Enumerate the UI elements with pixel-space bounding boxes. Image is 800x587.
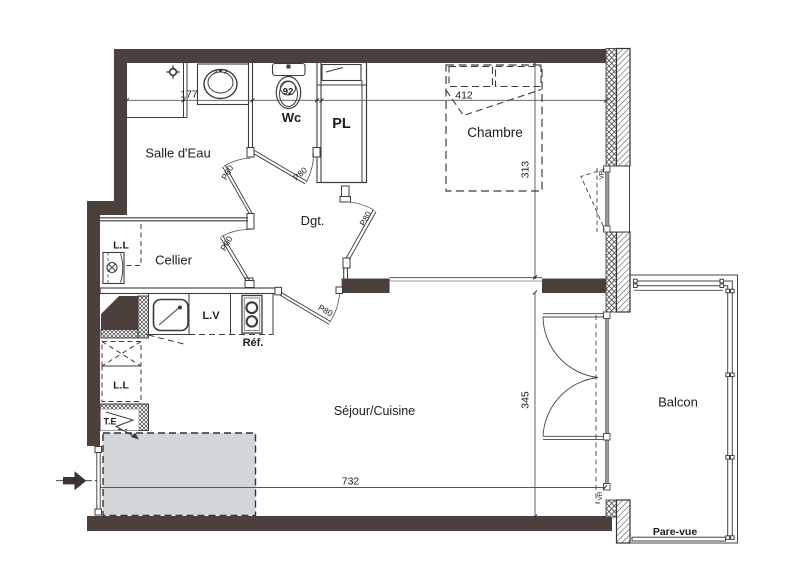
svg-text:313: 313	[520, 161, 532, 179]
svg-text:VR: VR	[597, 491, 604, 500]
svg-text:VR: VR	[599, 170, 606, 179]
svg-text:Salle d'Eau: Salle d'Eau	[145, 146, 210, 161]
svg-text:L.L: L.L	[113, 240, 129, 252]
svg-text:Dgt.: Dgt.	[301, 213, 325, 228]
svg-text:L.V: L.V	[202, 310, 220, 322]
svg-text:PL: PL	[332, 116, 351, 132]
svg-text:Pare-vue: Pare-vue	[653, 526, 698, 538]
svg-text:177: 177	[180, 89, 198, 101]
svg-text:Chambre: Chambre	[467, 125, 523, 140]
svg-text:345: 345	[520, 391, 532, 409]
svg-text:T.E: T.E	[103, 417, 116, 427]
svg-text:Séjour/Cuisine: Séjour/Cuisine	[334, 404, 415, 418]
svg-text:Réf.: Réf.	[243, 337, 264, 349]
svg-text:412: 412	[455, 90, 473, 102]
svg-text:Cellier: Cellier	[155, 253, 193, 268]
svg-text:Balcon: Balcon	[658, 395, 698, 410]
svg-text:92: 92	[283, 87, 294, 98]
svg-text:732: 732	[342, 476, 360, 488]
svg-text:L.L: L.L	[113, 380, 129, 392]
svg-text:Wc: Wc	[282, 110, 302, 125]
